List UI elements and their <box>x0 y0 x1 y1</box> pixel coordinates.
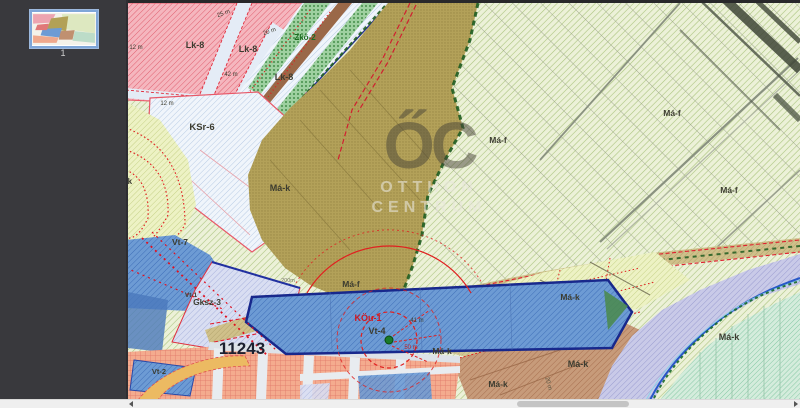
thumbnail-map-image <box>32 12 96 46</box>
zone-label: Má-f <box>342 279 360 289</box>
zoning-map[interactable]: Lk-8Lk-8Lk-8Zkö-2KSr-6Má-kMá-kVt-7Vt-1Gk… <box>126 0 800 400</box>
zone-label: Zkö-2 <box>294 33 316 42</box>
horizontal-scrollbar[interactable] <box>0 399 800 408</box>
zone-label: Vt-4 <box>368 326 385 336</box>
page-left-edge <box>126 0 128 400</box>
zone-label: Má-k <box>432 346 452 356</box>
zone-label: Vt-7 <box>172 237 188 247</box>
tree-marker <box>385 336 393 344</box>
dimension-label: 200m <box>281 278 295 284</box>
zone-label: Má-f <box>720 185 738 195</box>
dimension-label: 12 m <box>129 45 142 51</box>
page-number: 1 <box>0 48 126 58</box>
zone-label: Má-f <box>489 135 507 145</box>
thumbnail-panel: 1 <box>0 0 126 400</box>
page-top-edge <box>126 0 800 3</box>
zone-label: Lk-8 <box>275 72 294 82</box>
page-thumbnail[interactable] <box>30 10 98 48</box>
zone-label: Vt-2 <box>152 367 166 376</box>
zone-label: Má-k <box>568 359 589 369</box>
zone-label: Má-f <box>663 108 681 118</box>
app-window: 1 <box>0 0 800 408</box>
zone-label: Má-k <box>719 332 740 342</box>
zone-label: Lk-8 <box>186 40 205 50</box>
scroll-right-arrow[interactable] <box>794 401 798 407</box>
dimension-label: 41 m <box>410 318 423 324</box>
map-viewport[interactable]: Lk-8Lk-8Lk-8Zkö-2KSr-6Má-kMá-kVt-7Vt-1Gk… <box>126 0 800 400</box>
dimension-label: 50 m <box>404 345 417 351</box>
dimension-label: 12 m <box>160 101 173 107</box>
zone-label: Gksz-3 <box>193 297 221 307</box>
zone-label: Lk-8 <box>239 44 258 54</box>
zone-label: Má-k <box>270 183 291 193</box>
zone-label: KÖu-1 <box>355 313 382 323</box>
zone-label: Má-k <box>488 379 508 389</box>
dimension-label: 42 m <box>224 72 237 78</box>
zone-label: 11243 <box>219 339 265 358</box>
scrollbar-thumb[interactable] <box>517 401 629 407</box>
zone-label: Má-k <box>560 292 580 302</box>
scroll-left-arrow[interactable] <box>129 401 133 407</box>
zone-label: KSr-6 <box>189 122 214 133</box>
